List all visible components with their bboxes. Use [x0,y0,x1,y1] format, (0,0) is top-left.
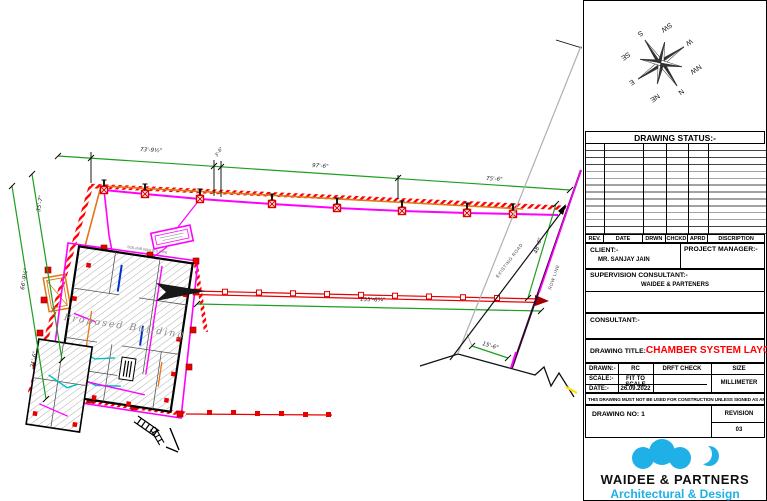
compass-s: S [636,29,644,38]
row-line-label: ROW LINE [547,264,560,290]
compass-se: SE [619,50,631,61]
consultant-section: CONSULTANT:- [585,313,765,339]
supervision-empty-box [585,291,765,313]
revision-grid-header: REV. DATE DRWN CHCKD APRD DISCRIPTION [585,234,765,243]
shaft-detail [119,357,136,381]
supervision-name: WAIDEE & PARTENERS [586,282,764,288]
road-lines [420,46,581,397]
dim-top-left: 73'-9½" [140,146,162,154]
compass-sw: SW [659,21,673,33]
compass-ne: NE [648,92,660,104]
date-value: 26.09.2022 [618,386,653,392]
supervision-section: SUPERVISION CONSULTANT:- WAIDEE & PARTEN… [585,269,765,291]
drwn-col-header: DRWN [643,235,666,242]
drawing-no-section: DRAWING NO: 1 REVISION 03 [585,405,765,438]
site-plan-canvas: Proposed Building SOIL/AIR WASTED PIPE [0,0,583,501]
compass-n: N [677,87,685,96]
chamber-detail-box [151,225,193,249]
client-label: CLIENT:- [590,247,618,254]
compass-rose: N NE E SE S SW W NW [584,1,766,129]
supervision-label: SUPERVISION CONSULTANT:- [590,272,688,279]
drawn-label: DRAWN:- [589,366,616,372]
company-name: WAIDEE & PARTNERS [584,472,766,487]
dim-diagonal: 48'-6" [533,237,544,255]
title-block: N NE E SE S SW W NW DRAWING STATUS:- REV… [583,0,767,501]
project-manager-label: PROJECT MANAGER:- [684,246,758,253]
drft-check-label: DRFT CHECK [653,366,711,372]
drawn-value: RC [618,366,653,372]
chckd-col-header: CHCKD [666,235,688,242]
drawing-status-header: DRAWING STATUS:- [585,131,765,144]
dim-middle-run: 155'-6¾" [360,297,385,304]
compass-nw: NW [688,63,702,76]
dim-top-right: 75'-6" [486,176,503,183]
dim-top-mid: 97'-6" [312,163,329,170]
drawing-sheet: { "compass": ["N","NE","E","SE","S","SW"… [0,0,767,501]
date-label: DATE:- [589,386,609,392]
scale-label: SCALE:- [589,376,613,382]
date-col-header: DATE [604,235,642,242]
revision-value: 03 [711,427,767,433]
compass-w: W [684,37,694,47]
compass-e: E [627,78,635,87]
company-tagline: Architectural & Design [584,487,766,501]
middle-chamber-run [156,283,549,306]
bottom-pipe-run [186,410,332,417]
info-grid: DRAWN:- RC DRFT CHECK SIZE SCALE:- FIT T… [585,363,765,393]
client-section: CLIENT:- MR. SANJAY JAIN PROJECT MANAGER… [585,243,765,269]
size-value: MILLIMETER [711,380,767,386]
compass-star [622,24,700,102]
stair-symbols [134,416,179,452]
drawing-title-section: DRAWING TITLE:- CHAMBER SYSTEM LAYOUT [585,339,765,363]
drawing-title-label: DRAWING TITLE:- [590,348,648,355]
client-name: MR. SANJAY JAIN [598,257,650,263]
company-logo [619,439,731,471]
road-label: EXISTING ROAD [495,242,524,279]
revision-grid [585,144,767,234]
drawing-no: DRAWING NO: 1 [592,411,645,418]
drawing-title: CHAMBER SYSTEM LAYOUT [646,345,767,356]
rev-col-header: REV. [586,235,604,242]
description-col-header: DISCRIPTION [708,235,764,242]
aprd-col-header: APRD [688,235,708,242]
consultant-label: CONSULTANT:- [590,317,640,324]
disclaimer: THIS DRAWING MUST NOT BE USED FOR CONSTR… [585,393,765,405]
dim-left-upper: 35'-7" [36,195,45,212]
dim-top-small: 3'-6" [214,146,225,158]
size-label: SIZE [711,366,767,372]
revision-label: REVISION [711,411,767,417]
